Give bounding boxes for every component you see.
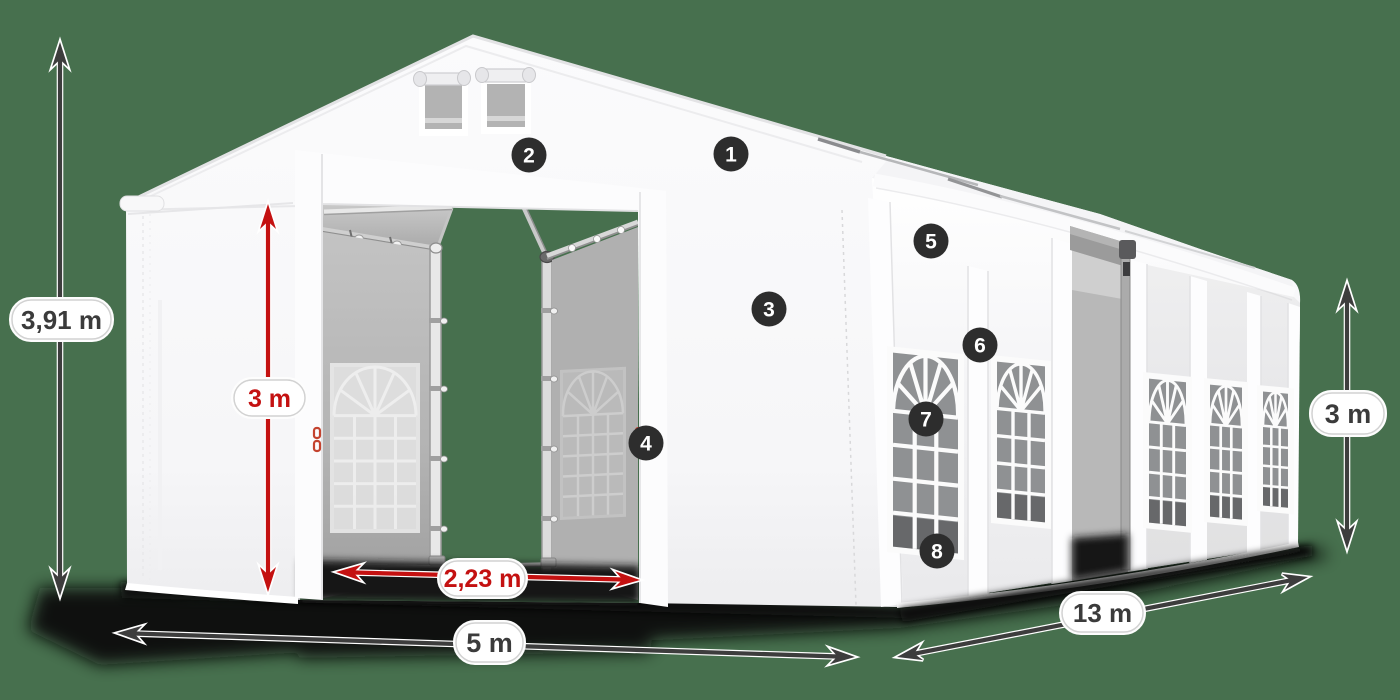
svg-text:7: 7 bbox=[920, 409, 932, 432]
svg-text:1: 1 bbox=[725, 144, 737, 167]
svg-text:13 m: 13 m bbox=[1073, 598, 1132, 628]
svg-text:5: 5 bbox=[925, 231, 937, 254]
svg-text:3,91 m: 3,91 m bbox=[21, 305, 102, 335]
svg-text:3: 3 bbox=[763, 299, 775, 322]
svg-text:3 m: 3 m bbox=[1325, 399, 1372, 429]
svg-text:8: 8 bbox=[931, 541, 943, 564]
svg-text:6: 6 bbox=[974, 335, 986, 358]
svg-text:2: 2 bbox=[523, 145, 535, 168]
svg-text:4: 4 bbox=[640, 433, 652, 456]
svg-text:5 m: 5 m bbox=[466, 628, 513, 658]
svg-text:2,23 m: 2,23 m bbox=[444, 565, 522, 593]
svg-text:3 m: 3 m bbox=[248, 385, 291, 413]
